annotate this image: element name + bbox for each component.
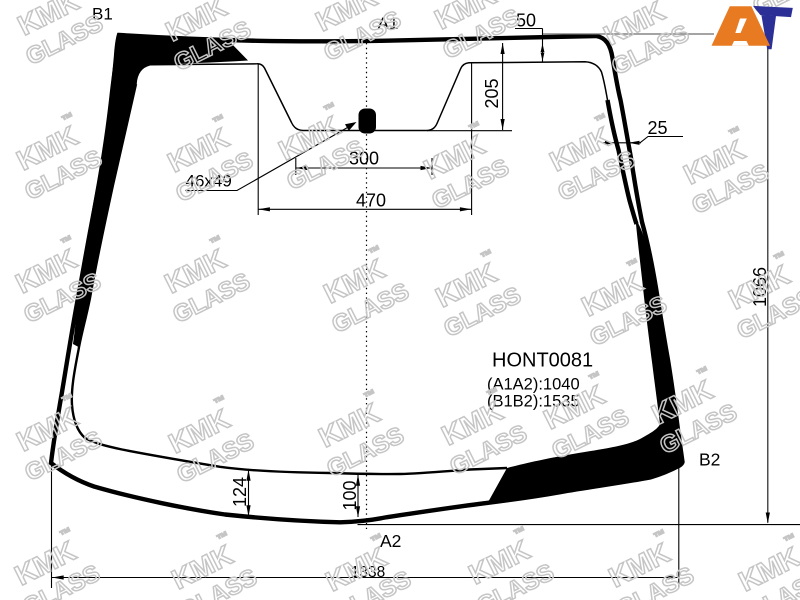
svg-text:470: 470 xyxy=(356,191,386,211)
svg-text:B2: B2 xyxy=(699,450,720,470)
svg-text:100: 100 xyxy=(340,480,360,510)
svg-text:205: 205 xyxy=(482,78,502,108)
svg-text:124: 124 xyxy=(230,477,250,507)
svg-text:HONT0081: HONT0081 xyxy=(492,350,593,372)
svg-text:25: 25 xyxy=(647,118,667,138)
svg-text:(A1A2):1040: (A1A2):1040 xyxy=(487,376,580,394)
